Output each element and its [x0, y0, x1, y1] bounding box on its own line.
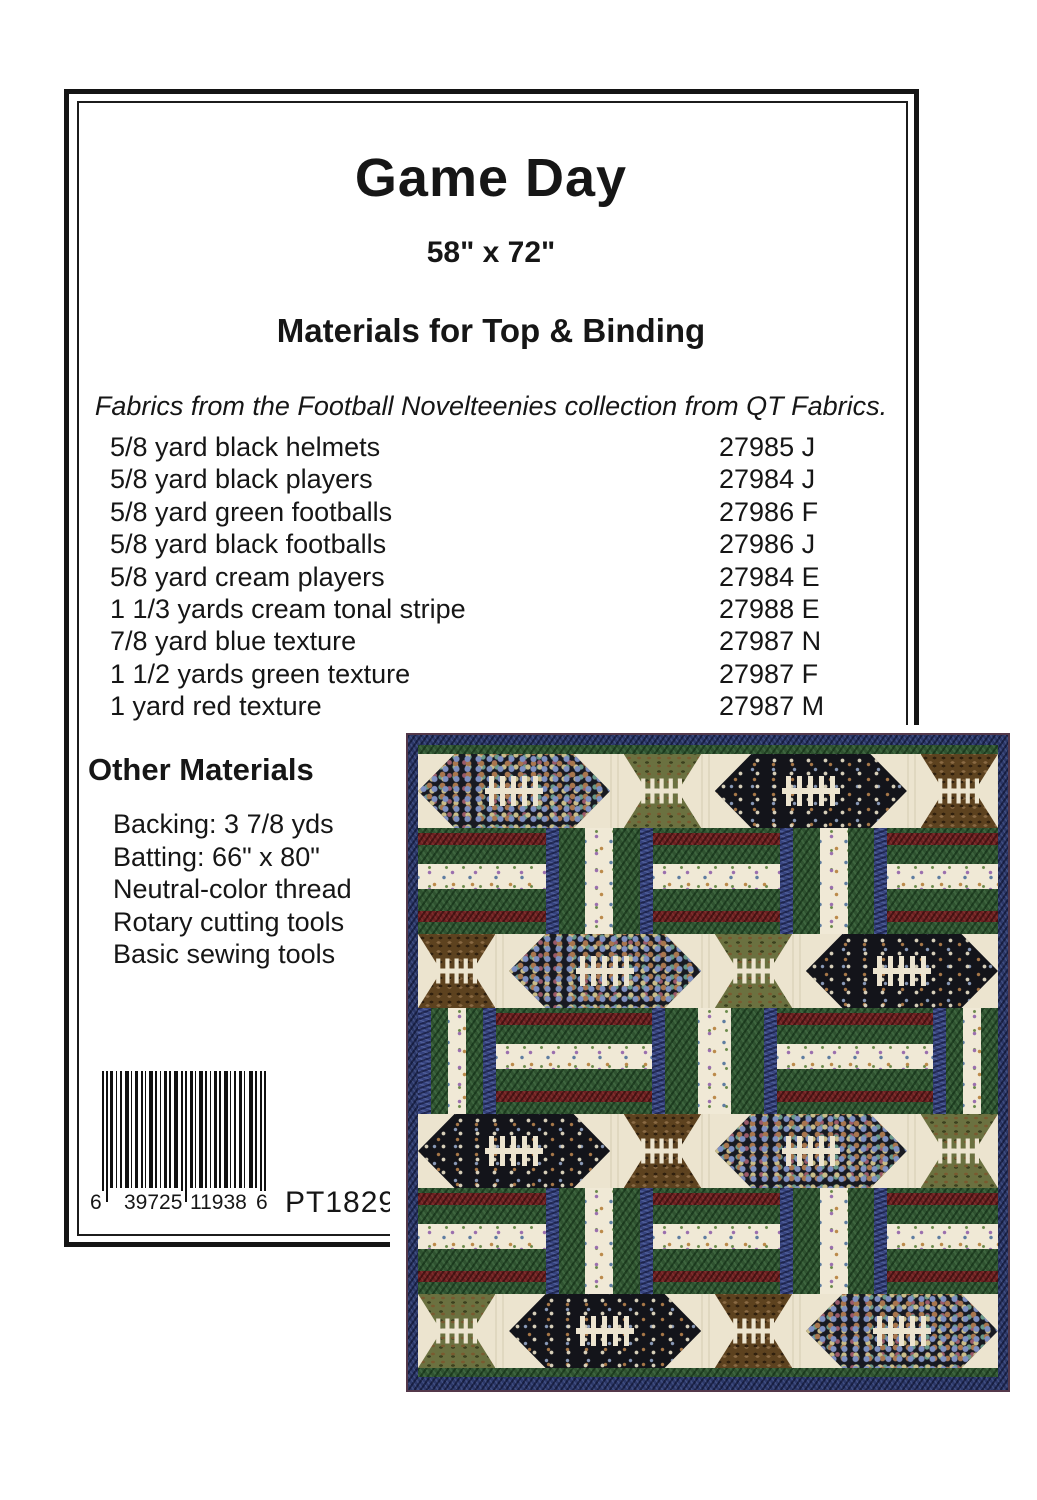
other-material-item: Neutral-color thread [113, 873, 352, 906]
material-item: 5/8 yard green footballs [110, 497, 392, 527]
other-material-item: Backing: 3 7/8 yds [113, 808, 352, 841]
rail-fence-block [653, 828, 781, 934]
quilt-inner-border [418, 1368, 998, 1377]
material-row: 5/8 yard black players27984 J [110, 464, 810, 496]
football-laces [637, 1136, 687, 1166]
pattern-number: PT1829 [285, 1186, 396, 1220]
blue-bar [874, 828, 887, 934]
rail-green [887, 889, 998, 910]
materials-heading: Materials for Top & Binding [65, 312, 917, 350]
quilt-row-footballs [418, 1114, 998, 1188]
fabric-code: 27987 N [719, 626, 821, 657]
football-hex-block [509, 1294, 701, 1368]
rail-green [653, 922, 781, 934]
football-laces [729, 956, 779, 986]
rail-green [418, 889, 546, 910]
page-title: Game Day [65, 147, 917, 209]
material-row: 5/8 yard green footballs27986 F [110, 497, 810, 529]
rail-green [887, 1249, 998, 1270]
football-sashing [610, 754, 624, 828]
football-sashing [701, 1114, 715, 1188]
vertical-cream-bar [820, 828, 848, 934]
fabric-code: 27987 M [719, 691, 824, 722]
rail-fence-block [887, 1188, 998, 1294]
rail-green [777, 1025, 933, 1044]
fabric-code: 27986 J [719, 529, 815, 560]
material-row: 7/8 yard blue texture27987 N [110, 626, 810, 658]
football-sashing [701, 1294, 715, 1368]
football-sashing [495, 934, 509, 1008]
blue-bar [546, 828, 559, 934]
football-bar-block [624, 1114, 701, 1188]
rail-red [418, 1271, 546, 1283]
football-bar-block [418, 934, 495, 1008]
other-materials-list: Backing: 3 7/8 yds Batting: 66" x 80" Ne… [113, 808, 352, 971]
rail-red [496, 1013, 652, 1025]
football-sashing [701, 934, 715, 1008]
football-hex-block [715, 1114, 907, 1188]
football-sashing [792, 1294, 806, 1368]
blue-bar [874, 1188, 887, 1294]
football-laces [432, 1316, 482, 1346]
football-sashing [792, 934, 806, 1008]
material-row: 5/8 yard black helmets27985 J [110, 432, 810, 464]
vertical-rail-block [793, 828, 874, 934]
material-item: 5/8 yard black helmets [110, 432, 380, 462]
blue-bar [546, 1188, 559, 1294]
football-hex-block [806, 1294, 998, 1368]
vertical-cream-bar [820, 1188, 848, 1294]
rail-green [653, 1205, 781, 1224]
blue-bar [652, 1008, 665, 1114]
vertical-cream-bar [585, 828, 613, 934]
material-item: 5/8 yard black footballs [110, 529, 386, 559]
upc-barcode: 6 39725 11938 6 PT1829 [88, 1071, 408, 1221]
rail-red [887, 911, 998, 923]
quilt-row-rails [418, 1008, 998, 1114]
football-sashing [907, 754, 921, 828]
football-bar-block [715, 1294, 792, 1368]
rail-red [653, 1193, 781, 1205]
rail-fence-block [418, 828, 546, 934]
material-row: 5/8 yard black footballs27986 J [110, 529, 810, 561]
football-hex-block [806, 934, 998, 1008]
football-bar-block [921, 754, 998, 828]
football-hex-block [715, 754, 907, 828]
quilt [406, 733, 1010, 1392]
rail-red [777, 1091, 933, 1103]
other-material-item: Batting: 66" x 80" [113, 841, 352, 874]
rail-cream-players [418, 1224, 546, 1249]
rail-fence-block [887, 828, 998, 934]
rail-red [887, 1271, 998, 1283]
rail-red [653, 911, 781, 923]
other-material-item: Basic sewing tools [113, 938, 352, 971]
rail-red [418, 1193, 546, 1205]
vertical-rail-block [431, 1008, 483, 1114]
barcode-digit-group2: 11938 [188, 1191, 249, 1215]
football-hex-block [418, 754, 610, 828]
rail-cream-players [887, 1224, 998, 1249]
football-hex-block [509, 934, 701, 1008]
rail-green [887, 1282, 998, 1294]
materials-list: 5/8 yard black helmets27985 J 5/8 yard b… [110, 432, 810, 724]
rail-red [653, 1271, 781, 1283]
vertical-rail-block [946, 1008, 998, 1114]
football-laces [637, 776, 687, 806]
material-item: 7/8 yard blue texture [110, 626, 356, 656]
football-laces [780, 1134, 842, 1168]
football-laces [934, 1136, 984, 1166]
rail-cream-players [418, 864, 546, 889]
other-material-item: Rotary cutting tools [113, 906, 352, 939]
rail-cream-players [653, 864, 781, 889]
football-hex-block [418, 1114, 610, 1188]
vertical-rail-block [559, 828, 640, 934]
vertical-cream-bar [963, 1008, 981, 1114]
blue-bar [483, 1008, 496, 1114]
football-bar-block [921, 1114, 998, 1188]
rail-green [653, 845, 781, 864]
rail-green [496, 1102, 652, 1114]
fabric-code: 27987 F [719, 659, 818, 690]
football-laces [574, 1314, 636, 1348]
rail-red [777, 1013, 933, 1025]
rail-green [418, 845, 546, 864]
vertical-rail-block [559, 1188, 640, 1294]
material-row: 5/8 yard cream players27984 E [110, 562, 810, 594]
material-row: 1 1/3 yards cream tonal stripe27988 E [110, 594, 810, 626]
fabrics-collection-note: Fabrics from the Football Novelteenies c… [65, 391, 917, 422]
football-laces [432, 956, 482, 986]
football-laces [483, 774, 545, 808]
vertical-cream-bar [585, 1188, 613, 1294]
blue-bar [780, 828, 793, 934]
material-item: 5/8 yard cream players [110, 562, 385, 592]
other-materials-heading: Other Materials [88, 752, 314, 788]
blue-bar [418, 1008, 431, 1114]
barcode-digit-left: 6 [88, 1191, 104, 1215]
rail-cream-players [653, 1224, 781, 1249]
rail-green [653, 889, 781, 910]
football-laces [871, 954, 933, 988]
material-row: 1 1/2 yards green texture27987 F [110, 659, 810, 691]
vertical-cream-bar [698, 1008, 732, 1114]
rail-green [418, 922, 546, 934]
rail-green [777, 1069, 933, 1090]
rail-cream-players [887, 864, 998, 889]
quilt-interior [418, 745, 998, 1380]
material-row: 1 yard red texture27987 M [110, 691, 810, 723]
rail-fence-block [418, 1188, 546, 1294]
football-laces [483, 1134, 545, 1168]
rail-green [887, 845, 998, 864]
rail-green [887, 922, 998, 934]
fabric-code: 27984 J [719, 464, 815, 495]
rail-green [777, 1102, 933, 1114]
football-sashing [610, 1114, 624, 1188]
fabric-code: 27985 J [719, 432, 815, 463]
material-item: 5/8 yard black players [110, 464, 373, 494]
rail-cream-players [777, 1044, 933, 1069]
football-bar-block [715, 934, 792, 1008]
vertical-cream-bar [448, 1008, 466, 1114]
rail-green [418, 1205, 546, 1224]
football-laces [934, 776, 984, 806]
blue-bar [640, 1188, 653, 1294]
rail-green [496, 1069, 652, 1090]
football-sashing [701, 754, 715, 828]
rail-red [887, 833, 998, 845]
football-laces [729, 1316, 779, 1346]
rail-green [418, 1249, 546, 1270]
material-item: 1 1/3 yards cream tonal stripe [110, 594, 466, 624]
fabric-code: 27984 E [719, 562, 820, 593]
quilt-row-rails [418, 828, 998, 934]
quilt-row-footballs [418, 934, 998, 1008]
pattern-back-cover: Game Day 58" x 72" Materials for Top & B… [0, 0, 1037, 1500]
material-item: 1 yard red texture [110, 691, 322, 721]
blue-bar [640, 828, 653, 934]
barcode-digit-right: 6 [254, 1191, 270, 1215]
barcode-digit-group1: 39725 [122, 1191, 184, 1215]
football-laces [871, 1314, 933, 1348]
vertical-rail-block [665, 1008, 764, 1114]
blue-bar [764, 1008, 777, 1114]
blue-bar [780, 1188, 793, 1294]
football-sashing [495, 1294, 509, 1368]
rail-green [653, 1249, 781, 1270]
rail-fence-block [496, 1008, 652, 1114]
rail-fence-block [777, 1008, 933, 1114]
rail-red [653, 833, 781, 845]
rail-green [887, 1205, 998, 1224]
material-item: 1 1/2 yards green texture [110, 659, 410, 689]
rail-red [887, 1193, 998, 1205]
rail-fence-block [653, 1188, 781, 1294]
fabric-code: 27986 F [719, 497, 818, 528]
football-sashing [907, 1114, 921, 1188]
rail-green [418, 1282, 546, 1294]
quilt-row-footballs [418, 754, 998, 828]
rail-red [418, 833, 546, 845]
quilt-row-footballs [418, 1294, 998, 1368]
quilt-inner-border [418, 745, 998, 754]
rail-red [496, 1091, 652, 1103]
rail-green [496, 1025, 652, 1044]
quilt-row-rails [418, 1188, 998, 1294]
rail-red [418, 911, 546, 923]
football-bar-block [624, 754, 701, 828]
rail-cream-players [496, 1044, 652, 1069]
fabric-code: 27988 E [719, 594, 820, 625]
football-laces [574, 954, 636, 988]
rail-green [653, 1282, 781, 1294]
quilt-photo [390, 725, 1022, 1400]
quilt-dimensions: 58" x 72" [65, 236, 917, 270]
vertical-rail-block [793, 1188, 874, 1294]
blue-bar [933, 1008, 946, 1114]
football-bar-block [418, 1294, 495, 1368]
barcode-bars [102, 1071, 270, 1202]
football-laces [780, 774, 842, 808]
